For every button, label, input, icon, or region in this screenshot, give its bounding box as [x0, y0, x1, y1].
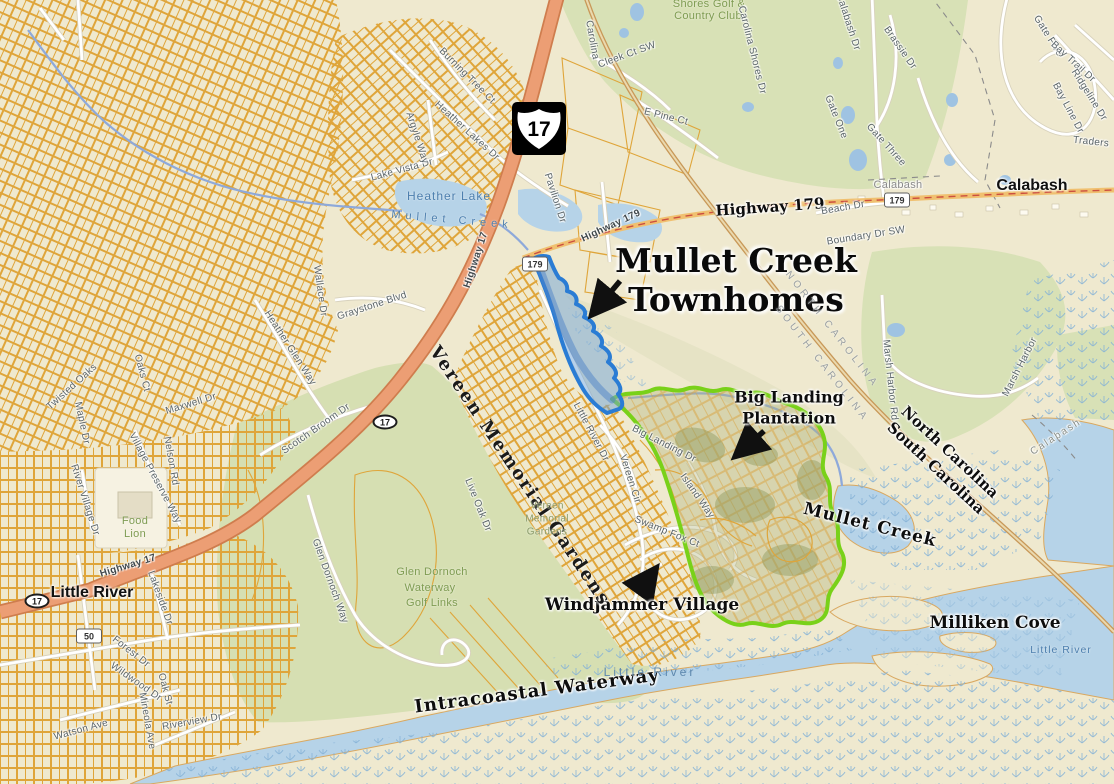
street-label-wildwood-dr: Wildwood Dr	[108, 660, 163, 703]
vereen-small-label-line1: Vereen	[530, 501, 564, 512]
street-label-beach-dr: Beach Dr	[820, 199, 865, 217]
glen-dornoch-label-line3: Golf Links	[406, 597, 458, 609]
big-landing-label-line2: Plantation	[742, 409, 836, 428]
highway-179-label: Highway 179	[715, 194, 825, 220]
street-label-cleek-ct: Cleek Ct SW	[597, 39, 658, 70]
street-label-maple-dr: Maple Dr	[72, 401, 92, 445]
street-label-maxwell-dr: Maxwell Dr	[164, 391, 217, 417]
vereen-small-label-line2: Memorial	[525, 514, 569, 525]
street-label-traders: Traders	[1072, 135, 1109, 150]
map-title: Mullet Creek Townhomes	[600, 242, 872, 320]
map-canvas: 17 17 17 179 179 50 Mullet Creek Townhom…	[0, 0, 1114, 784]
street-label-highway-17-north: Highway 17	[462, 231, 490, 290]
street-label-oaks-ct: Oaks Ct	[132, 353, 153, 393]
map-title-line2: Townhomes	[600, 281, 872, 320]
street-label-pavilion-dr: Pavilion Dr	[542, 172, 568, 225]
shores-golf-label-line1: Shores Golf &	[673, 0, 745, 10]
street-label-nelson-rd: Nelson Rd	[161, 436, 180, 487]
street-label-heather-lakes-dr: Heather Lakes Dr	[432, 99, 501, 163]
street-label-glen-dornoch-way: Glen Dornoch Way	[310, 537, 351, 624]
street-label-gate-one: Gate One	[822, 94, 849, 141]
street-label-riverview-dr: Riverview Dr	[161, 711, 222, 732]
street-label-graystone-blvd: Graystone Blvd	[336, 290, 408, 323]
glen-dornoch-label-line2: Waterway	[405, 582, 456, 594]
food-lion-label-line1: Food	[122, 515, 148, 527]
vereen-small-label-line3: Gardens	[527, 527, 567, 538]
big-landing-label-line1: Big Landing	[734, 388, 844, 407]
label-layer: Mullet Creek Townhomes Big Landing Plant…	[0, 0, 1114, 784]
street-label-e-pine-ct: E Pine Ct	[643, 106, 689, 128]
street-label-vereen-cir: Vereen Cir	[617, 453, 643, 504]
shores-golf-label-line2: Country Club	[674, 10, 742, 22]
map-title-line1: Mullet Creek	[600, 242, 872, 281]
street-label-lakeside-dr: Lakeside Dr	[145, 569, 175, 626]
street-label-big-landing-dr: Big Landing Dr	[630, 423, 698, 465]
street-label-argyle-way: Argyle Way	[403, 111, 430, 166]
little-river-east-label: Little River	[1030, 644, 1092, 656]
street-label-gate-three: Gate Three	[864, 121, 908, 168]
street-label-watson-ave: Watson Ave	[53, 717, 110, 742]
mullet-creek-label: Mullet Creek	[801, 499, 938, 551]
glen-dornoch-label-line1: Glen Dornoch	[396, 566, 467, 578]
little-river-channel-label: Little River	[604, 665, 697, 679]
street-label-live-oak-dr: Live Oak Dr	[462, 477, 493, 533]
calabash-creek-label: Calabash	[1029, 417, 1084, 458]
street-label-wallace-dr: Wallace Dr	[311, 265, 329, 318]
mullet-creek-stream-label: Mullet Creek	[391, 209, 513, 232]
street-label-river-village-dr: River Village Dr	[68, 463, 101, 537]
street-label-little-river-dr: Little River Dr	[571, 401, 611, 464]
street-label-calabash-dr: Calabash Dr	[834, 0, 863, 52]
street-label-carolina: Carolina	[583, 20, 601, 61]
street-label-heather-glen-way: Heather Glen Way	[262, 309, 318, 388]
street-label-carolina-shores-dr: Carolina Shores Dr	[736, 5, 769, 95]
food-lion-label-line2: Lion	[124, 528, 146, 540]
windjammer-village-label: Windjammer Village	[545, 595, 739, 615]
little-river-town-label: Little River	[51, 584, 134, 602]
calabash-town-label: Calabash	[996, 177, 1067, 195]
calabash-settlement-label: Calabash	[874, 179, 923, 191]
street-label-highway-179-small: Highway 179	[580, 208, 643, 245]
street-label-scotch-broom-dr: Scotch Broom Dr	[280, 401, 352, 456]
street-label-marsh-harbor: Marsh Harbor	[1000, 336, 1039, 399]
street-label-island-way: Island Way	[678, 472, 717, 521]
street-label-marsh-harbor-rd: Marsh Harbor Rd	[880, 339, 899, 421]
street-label-swamp-fox-ct: Swamp Fox Ct	[633, 514, 701, 550]
heather-lake-label: Heather Lake	[407, 189, 491, 203]
street-label-burning-tree-ct: Burning Tree Ct	[437, 46, 497, 106]
street-label-brassie-dr: Brassie Dr	[881, 24, 919, 71]
milliken-cove-label: Milliken Cove	[929, 613, 1060, 633]
